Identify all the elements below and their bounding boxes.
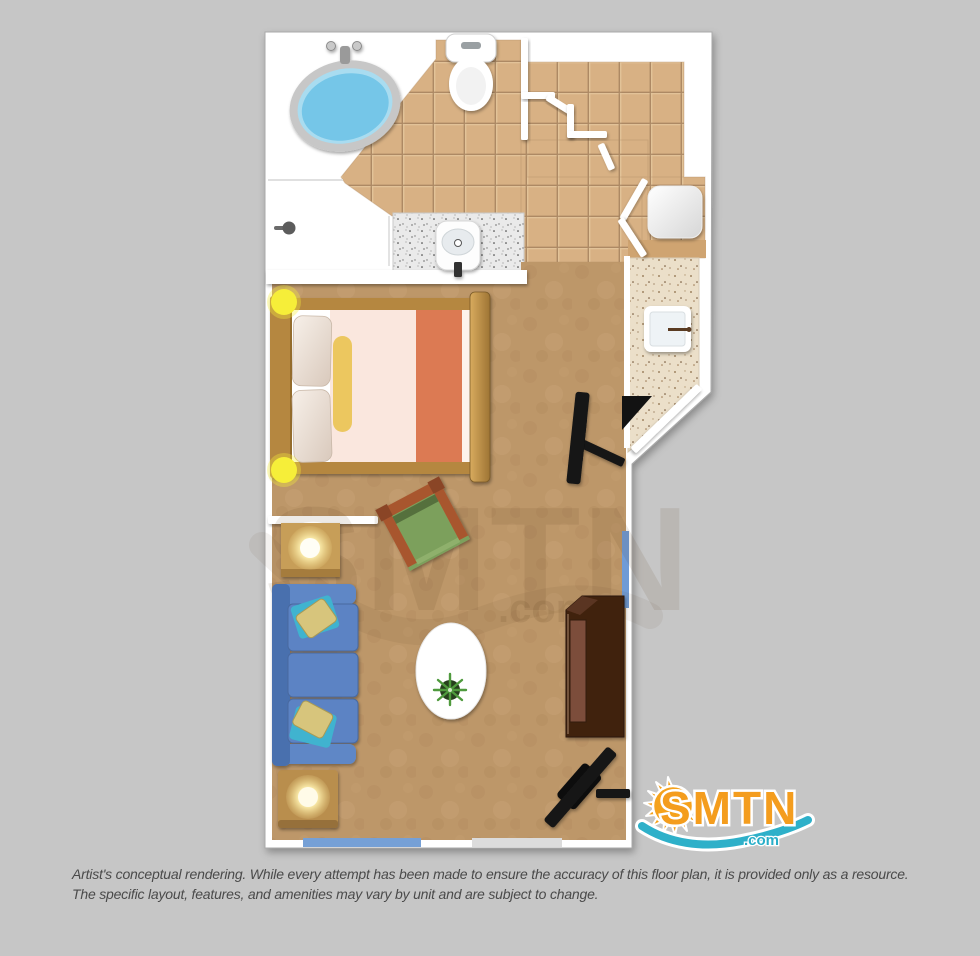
floor-plan-graphic: SMTN .com [0, 0, 980, 956]
side-table-lamp-top [281, 523, 340, 577]
floor-plan-page: SMTN .com [0, 0, 980, 956]
window-bottom [303, 838, 421, 847]
bed [270, 292, 490, 482]
logo-suffix: .com [744, 832, 779, 849]
sofa [272, 584, 358, 766]
pillow [292, 316, 332, 387]
area-rug [416, 623, 486, 719]
disclaimer-text: Artist's conceptual rendering. While eve… [72, 864, 972, 904]
vanity-sink [436, 221, 480, 277]
closet-fixture [648, 186, 702, 238]
wall-bedroom-bathroom [266, 270, 527, 284]
smtn-logo: SMTN .com [642, 777, 808, 849]
pillow [292, 389, 332, 462]
disclaimer-line-1: Artist's conceptual rendering. While eve… [72, 864, 972, 884]
balcony-door-recess [472, 838, 562, 847]
wall-sconce [267, 285, 301, 319]
footboard [470, 292, 490, 482]
dresser [566, 596, 624, 737]
side-table-lamp-bottom [278, 770, 338, 828]
logo-text: SMTN [660, 782, 798, 834]
wall-sconce [267, 453, 301, 487]
toilet [446, 34, 496, 111]
bolster-pillow [333, 336, 352, 432]
kitchenette-sink [644, 306, 692, 352]
disclaimer-line-2: The specific layout, features, and ameni… [72, 884, 972, 904]
